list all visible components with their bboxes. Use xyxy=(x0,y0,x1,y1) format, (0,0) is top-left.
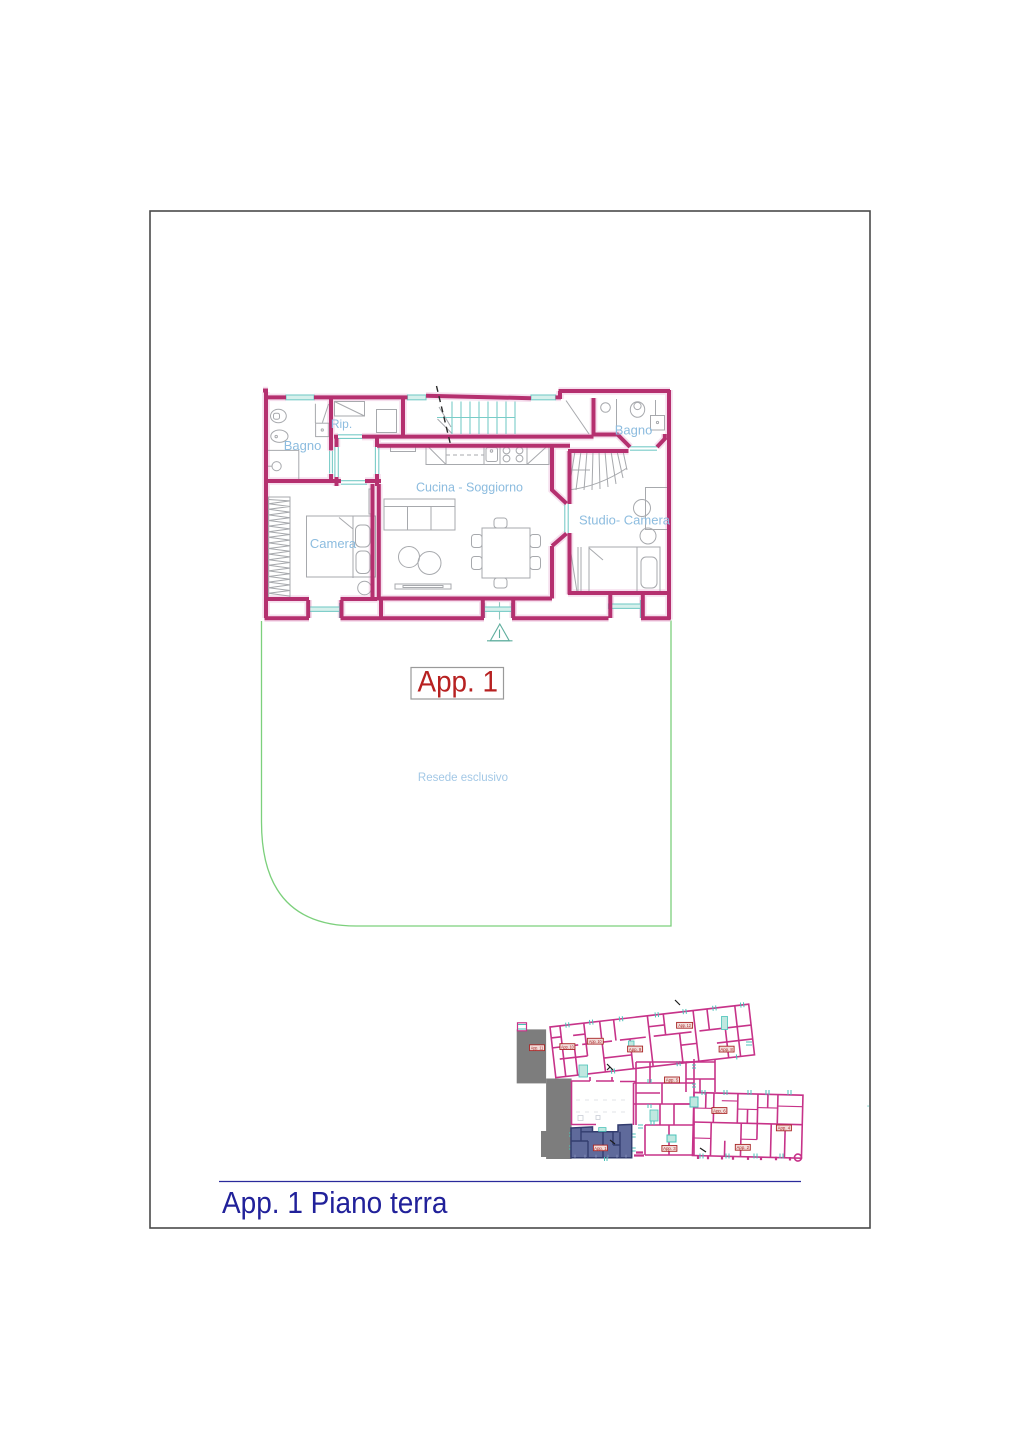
svg-text:App. 11: App. 11 xyxy=(531,1046,544,1052)
svg-text:App. 10: App. 10 xyxy=(589,1039,602,1045)
svg-text:App. 2: App. 2 xyxy=(737,1145,750,1151)
svg-text:App. 1: App. 1 xyxy=(594,1146,607,1152)
svg-text:Bagno: Bagno xyxy=(284,438,322,453)
svg-text:App. 9: App. 9 xyxy=(629,1047,642,1053)
svg-text:Resede esclusivo: Resede esclusivo xyxy=(418,772,508,784)
svg-text:App. 5: App. 5 xyxy=(666,1078,679,1084)
svg-text:Bagno: Bagno xyxy=(615,423,653,438)
svg-text:Rip.: Rip. xyxy=(331,417,352,431)
svg-text:App. 6: App. 6 xyxy=(713,1108,726,1114)
svg-text:App. 8: App. 8 xyxy=(720,1047,733,1053)
svg-text:Camera: Camera xyxy=(310,536,357,551)
svg-text:App. 4: App. 4 xyxy=(778,1126,791,1132)
svg-text:Studio- Camera: Studio- Camera xyxy=(579,513,671,528)
svg-text:App. 12: App. 12 xyxy=(678,1023,691,1029)
svg-text:App. 1 Piano terra: App. 1 Piano terra xyxy=(222,1185,448,1220)
svg-text:Cucina - Soggiorno: Cucina - Soggiorno xyxy=(416,481,523,495)
svg-text:App. 10: App. 10 xyxy=(561,1044,574,1050)
svg-text:App. 1: App. 1 xyxy=(418,666,499,699)
svg-text:App. 3: App. 3 xyxy=(663,1146,676,1152)
